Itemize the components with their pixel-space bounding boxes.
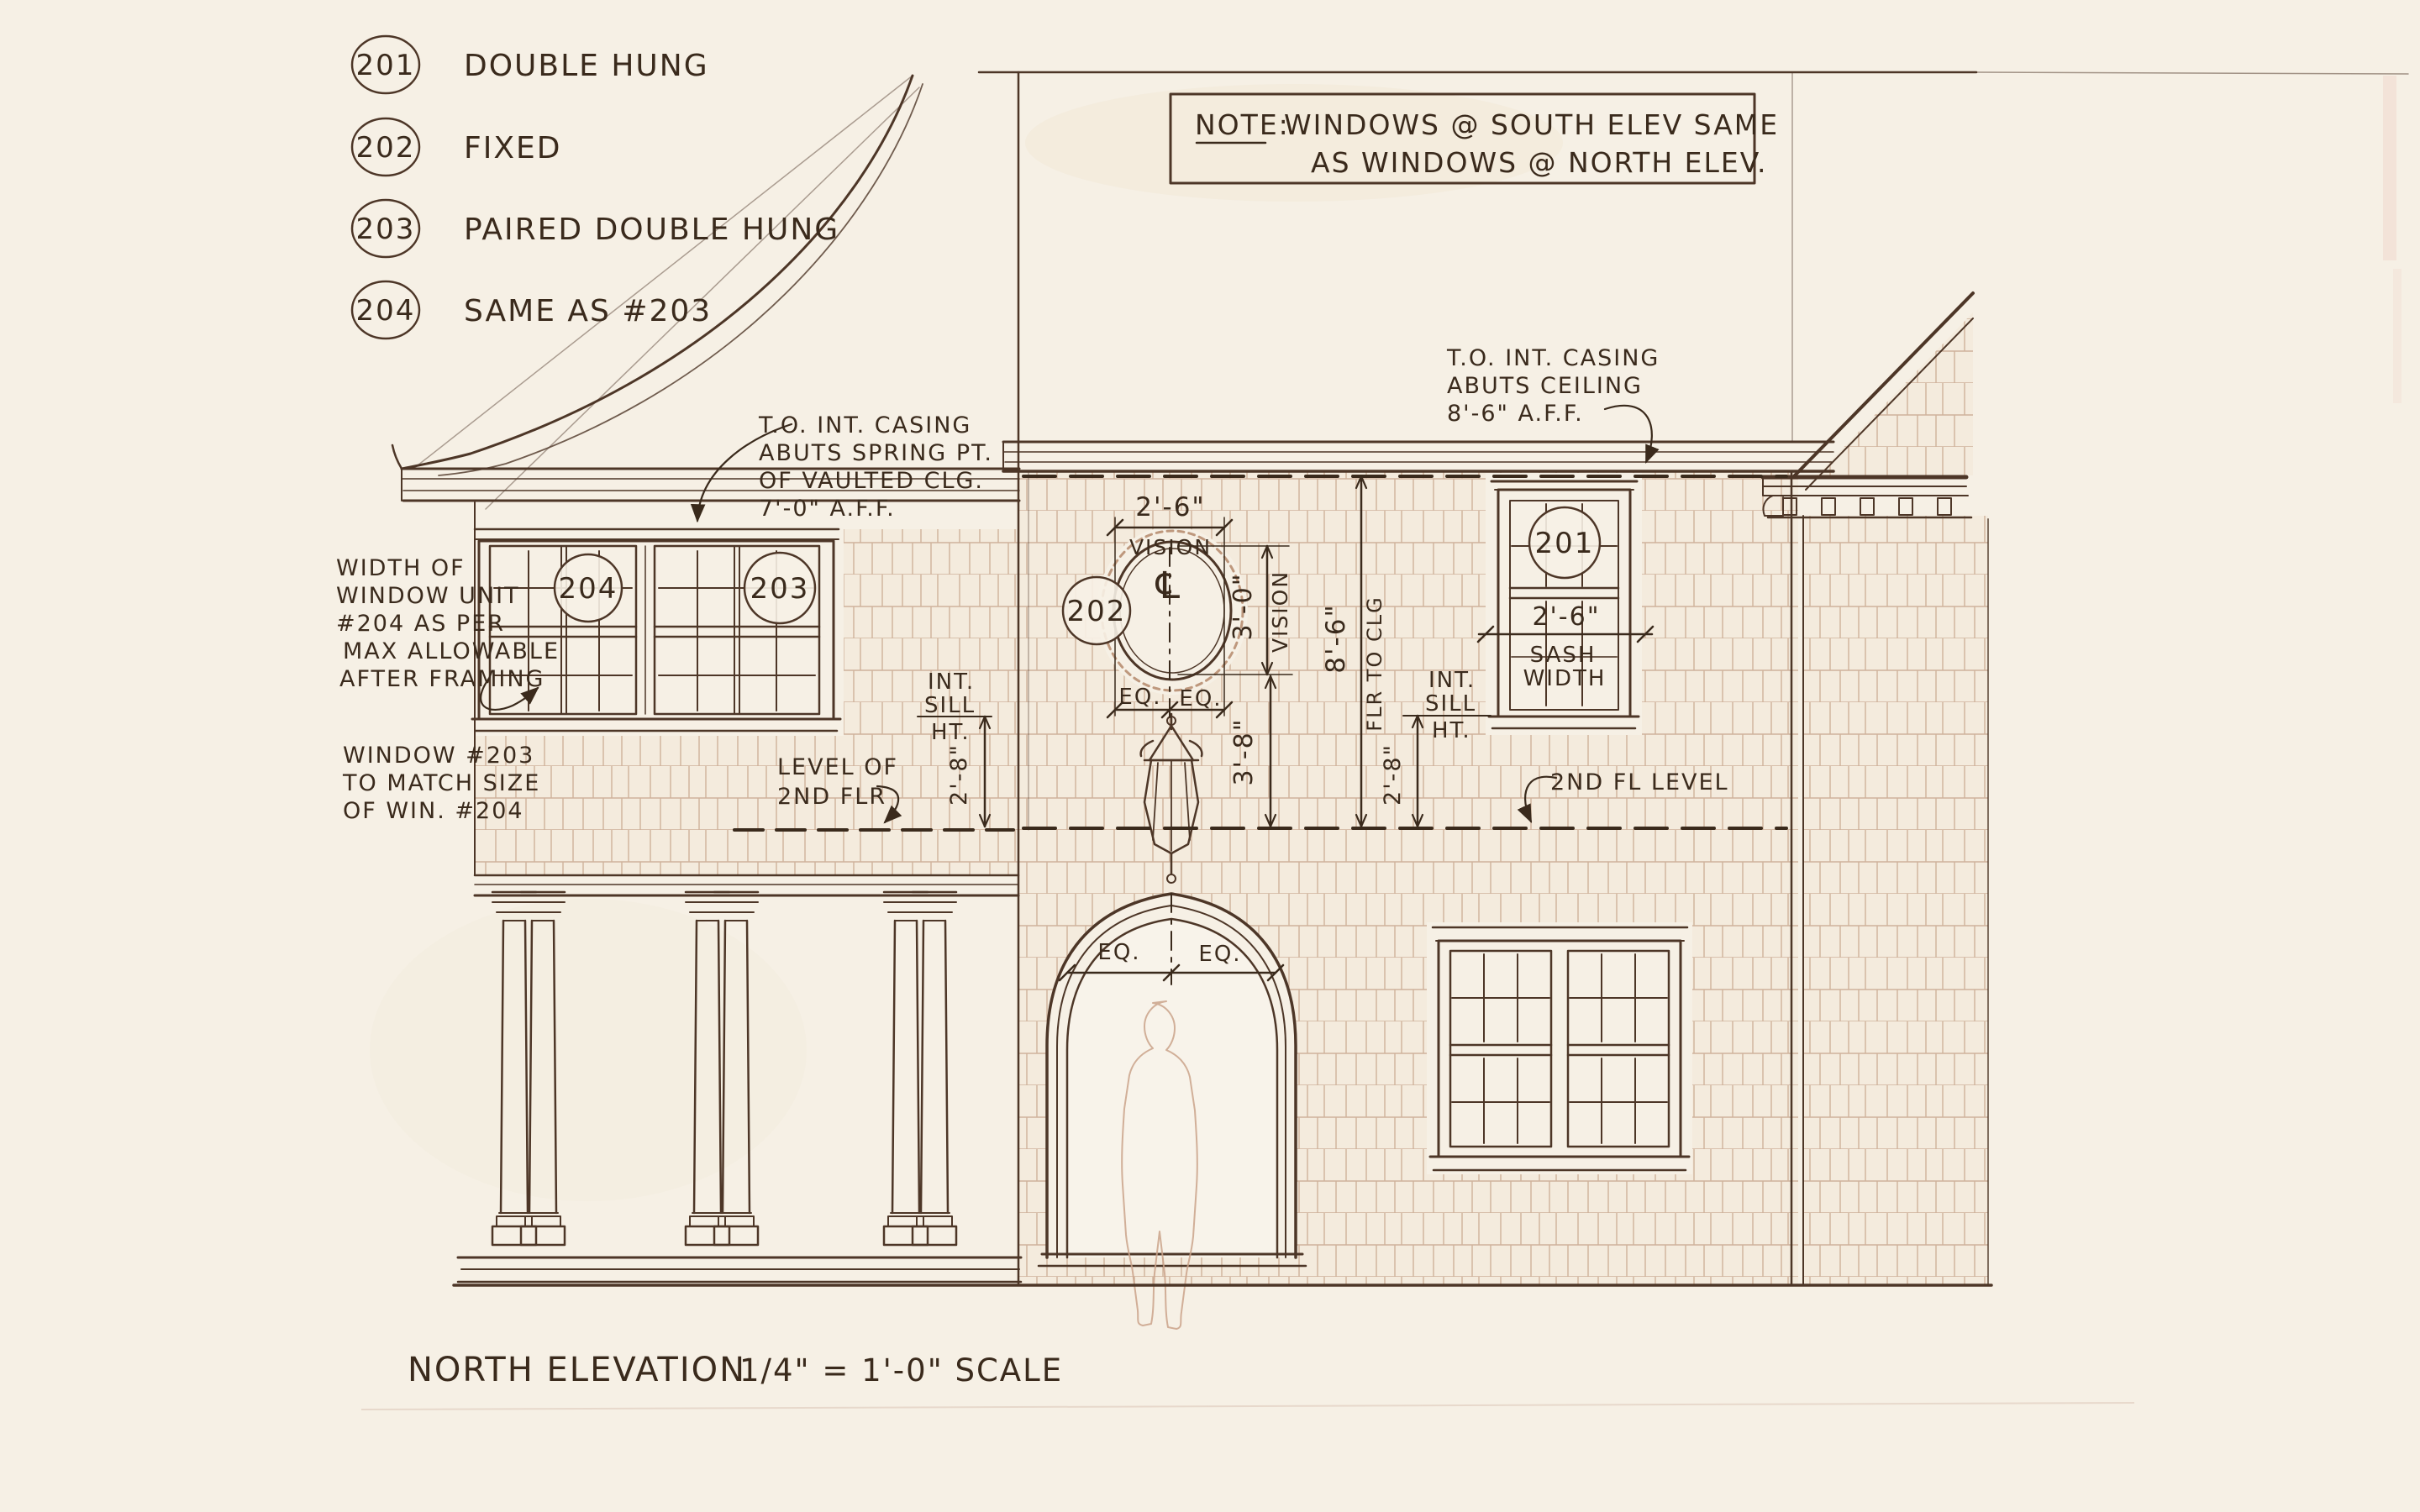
dim-sash-width-l2: Width <box>1523 666 1607 691</box>
note-line1: Windows @ South Elev Same <box>1284 108 1779 141</box>
dim-oval-width: 2'-6" <box>1135 492 1205 522</box>
legend-number-202: 202 <box>356 131 416 165</box>
drawing-sheet: 201 Double Hung 202 Fixed 203 Paired Dou… <box>0 0 2420 1512</box>
width-note-l4: Max Allowable <box>343 638 560 664</box>
width-note-l1: Width of <box>336 555 466 581</box>
width-note-l2: Window Unit <box>336 583 520 609</box>
width-note-l5: After Framing <box>339 666 544 692</box>
dim-oval-height: 3'-0" <box>1228 572 1258 640</box>
dim-floor-to-ceiling: 8'-6" <box>1321 603 1351 673</box>
dim-oval-width-label: Vision <box>1129 535 1212 559</box>
sheet-title: North Elevation <box>408 1351 746 1389</box>
dim-floor-to-ceiling-label: Flr to Clg <box>1363 596 1386 731</box>
casing-spring-l2: Abuts Spring Pt. <box>759 440 993 466</box>
tag-201: 201 <box>1535 527 1595 560</box>
note-heading: Note: <box>1195 108 1290 141</box>
dim-sash-width-l1: Sash <box>1530 643 1597 668</box>
sill-left-l3: Ht. <box>931 720 971 745</box>
dim-sash-width: 2'-6" <box>1532 602 1600 632</box>
dim-oval-height-label: Vision <box>1268 570 1292 653</box>
legend-number-203: 203 <box>356 213 416 246</box>
legend-label-201: Double Hung <box>464 49 709 83</box>
dim-door-eq-left: EQ. <box>1097 940 1140 965</box>
match-note-l1: Window #203 <box>343 743 534 769</box>
dim-vision-to-floor: 3'-8" <box>1229 717 1259 785</box>
legend-number-201: 201 <box>356 49 416 82</box>
level-2nd-l2: 2nd Flr <box>777 784 886 810</box>
legend-label-204: Same as #203 <box>464 294 712 328</box>
legend-label-202: Fixed <box>464 131 561 165</box>
tag-204: 204 <box>559 572 618 606</box>
casing-ceiling-l3: 8'-6" A.F.F. <box>1447 401 1584 427</box>
legend-number-204: 204 <box>356 294 416 328</box>
tag-202: 202 <box>1067 595 1127 628</box>
rear-wall-top-line <box>979 72 2408 74</box>
sill-right-l3: Ht. <box>1432 718 1471 743</box>
north-elevation-drawing: 201 Double Hung 202 Fixed 203 Paired Dou… <box>0 0 2420 1512</box>
note-line2: as Windows @ North Elev. <box>1311 146 1768 179</box>
casing-spring-l3: of Vaulted Clg. <box>759 468 984 494</box>
casing-spring-l4: 7'-0" A.F.F. <box>759 496 896 522</box>
dim-oval-eq-right: EQ. <box>1179 686 1222 711</box>
sill-right-l2: Sill <box>1425 691 1476 717</box>
width-note-l3: #204 as per <box>336 611 505 637</box>
centerline-symbol: ℄ <box>1155 564 1181 607</box>
casing-ceiling-l2: Abuts Ceiling <box>1447 373 1643 399</box>
dim-sill-right: 2'-8" <box>1380 743 1406 806</box>
sill-right-l1: Int. <box>1428 668 1476 693</box>
sill-left-l1: Int. <box>928 669 975 695</box>
legend-label-203: Paired Double Hung <box>464 213 839 247</box>
dim-sill-left: 2'-8" <box>946 743 972 806</box>
sill-left-l2: Sill <box>924 693 976 718</box>
second-fl-level: 2nd Fl Level <box>1550 769 1729 795</box>
tag-203: 203 <box>750 572 810 606</box>
match-note-l3: of Win. #204 <box>343 798 524 824</box>
casing-spring-l1: T.O. Int. Casing <box>758 412 971 438</box>
dim-door-eq-right: EQ. <box>1198 942 1241 967</box>
casing-ceiling-l1: T.O. Int. Casing <box>1446 345 1660 371</box>
dim-oval-eq-left: EQ. <box>1118 685 1161 710</box>
sheet-scale: 1/4" = 1'-0" Scale <box>739 1352 1063 1389</box>
level-2nd-l1: Level of <box>777 754 898 780</box>
match-note-l2: to Match Size <box>342 770 540 796</box>
